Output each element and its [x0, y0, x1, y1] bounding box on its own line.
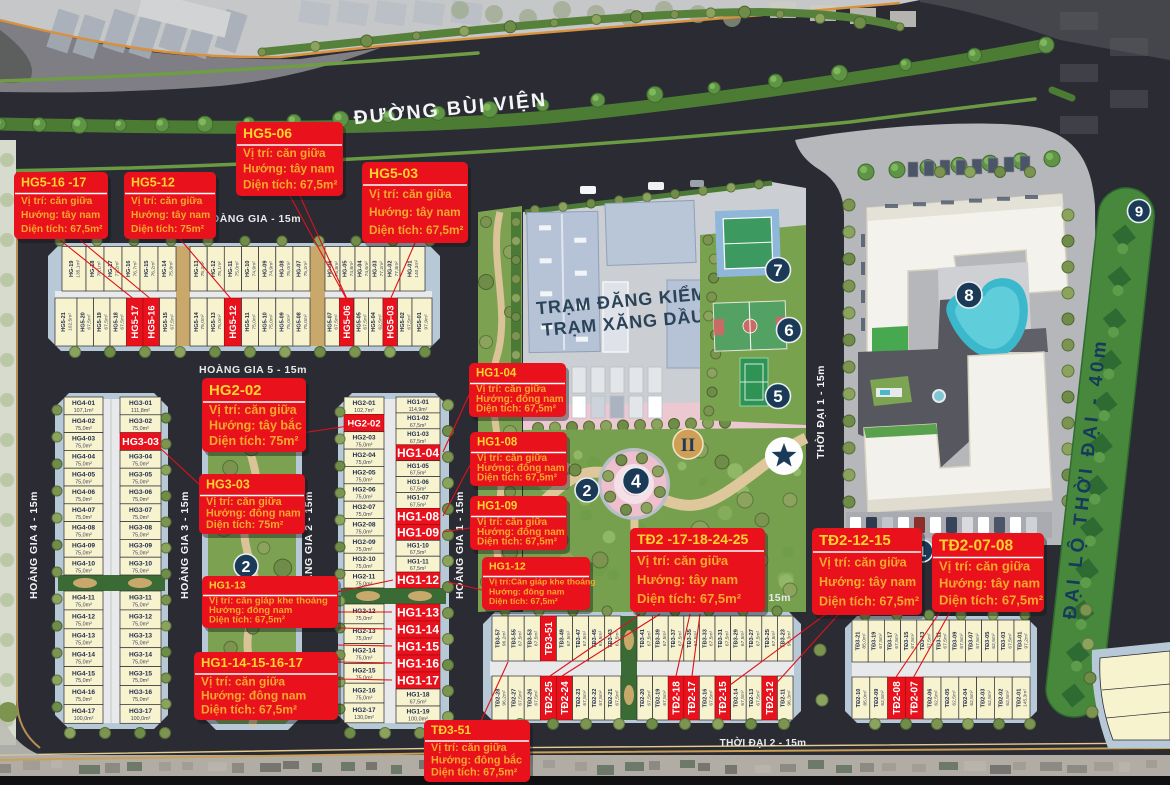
- svg-text:HG-02: HG-02: [388, 261, 394, 277]
- svg-text:TĐ3-27: TĐ3-27: [749, 629, 755, 648]
- svg-text:67,5m²: 67,5m²: [740, 690, 746, 706]
- svg-text:8: 8: [964, 286, 973, 305]
- svg-text:HOÀNG GIA 3 - 15m: HOÀNG GIA 3 - 15m: [178, 491, 191, 599]
- svg-text:HG4-08: HG4-08: [72, 525, 95, 532]
- svg-text:67,5m²: 67,5m²: [959, 633, 965, 649]
- svg-text:75,0m²: 75,0m²: [132, 568, 149, 574]
- svg-text:Diện tích: 67,5m²: Diện tích: 67,5m²: [243, 177, 337, 191]
- svg-text:67,5m²: 67,5m²: [534, 631, 540, 647]
- svg-text:67,5m²: 67,5m²: [771, 631, 777, 647]
- svg-text:67,5m²: 67,5m²: [614, 631, 620, 647]
- svg-text:67,5m²: 67,5m²: [1007, 633, 1013, 649]
- svg-text:HOÀNG GIA 5 - 15m: HOÀNG GIA 5 - 15m: [199, 363, 307, 376]
- svg-text:67,5m²: 67,5m²: [756, 631, 762, 647]
- svg-text:HOÀNG GIA 1 - 15m: HOÀNG GIA 1 - 15m: [453, 491, 466, 599]
- svg-text:HG-13: HG-13: [194, 261, 200, 277]
- svg-text:67,5m²: 67,5m²: [518, 690, 524, 706]
- svg-text:HG3-17: HG3-17: [129, 708, 152, 715]
- svg-text:TĐ3-17: TĐ3-17: [888, 632, 894, 651]
- svg-text:67,5m²: 67,5m²: [740, 631, 746, 647]
- svg-text:67,5m²: 67,5m²: [518, 631, 524, 647]
- svg-text:75,0m²: 75,0m²: [356, 460, 373, 466]
- svg-text:145,3m²: 145,3m²: [1023, 689, 1029, 707]
- svg-text:HG1-12: HG1-12: [397, 573, 439, 587]
- svg-text:TĐ2 -17-18-24-25: TĐ2 -17-18-24-25: [637, 531, 748, 547]
- svg-text:TĐ2-05: TĐ2-05: [945, 689, 951, 708]
- svg-text:77,8m²: 77,8m²: [394, 261, 400, 277]
- svg-text:HG5-06: HG5-06: [342, 305, 353, 338]
- svg-text:HG1-15: HG1-15: [397, 640, 439, 654]
- svg-text:HG5-02: HG5-02: [400, 312, 406, 332]
- svg-text:75,0m²: 75,0m²: [132, 479, 149, 485]
- svg-text:HG-10: HG-10: [245, 261, 251, 277]
- svg-text:Diện tích: 67,5m²: Diện tích: 67,5m²: [637, 591, 742, 606]
- svg-text:67,5m²: 67,5m²: [614, 690, 620, 706]
- svg-text:HG4-01: HG4-01: [72, 400, 95, 407]
- svg-text:6: 6: [784, 321, 793, 340]
- svg-text:75,0m²: 75,0m²: [356, 616, 373, 622]
- svg-text:TĐ3-25: TĐ3-25: [765, 629, 771, 648]
- svg-text:HG-19: HG-19: [69, 261, 75, 277]
- svg-text:130,0m²: 130,0m²: [354, 715, 374, 721]
- svg-text:75,0m²: 75,0m²: [132, 697, 149, 703]
- svg-text:HG3-15: HG3-15: [129, 670, 152, 677]
- svg-text:HG4-07: HG4-07: [72, 507, 95, 514]
- svg-text:67,5m²: 67,5m²: [598, 631, 604, 647]
- svg-text:TĐ2-20: TĐ2-20: [640, 689, 646, 708]
- svg-text:Hướng: tây nam: Hướng: tây nam: [939, 575, 1040, 590]
- svg-text:67,5m²: 67,5m²: [598, 690, 604, 706]
- svg-text:75,0m²: 75,0m²: [75, 497, 92, 503]
- svg-text:Diện tích: 67,5m²: Diện tích: 67,5m²: [477, 537, 558, 548]
- svg-text:TĐ2-16: TĐ2-16: [702, 689, 708, 708]
- svg-text:75,0m²: 75,0m²: [286, 261, 292, 277]
- svg-text:HG5-10: HG5-10: [262, 312, 268, 332]
- svg-text:HG5-09: HG5-09: [280, 312, 286, 332]
- svg-text:TĐ3-47: TĐ3-47: [576, 629, 582, 648]
- svg-text:HG5-18: HG5-18: [113, 312, 119, 332]
- svg-text:75,0m²: 75,0m²: [132, 533, 149, 539]
- svg-text:HG4-05: HG4-05: [72, 471, 95, 478]
- svg-text:HG4-12: HG4-12: [72, 614, 95, 621]
- svg-text:HG1-10: HG1-10: [407, 542, 429, 549]
- svg-text:HG4-10: HG4-10: [72, 560, 95, 567]
- svg-text:TĐ3-37: TĐ3-37: [671, 629, 677, 648]
- svg-text:HG1-08: HG1-08: [477, 437, 518, 449]
- svg-text:HG2-06: HG2-06: [352, 487, 375, 494]
- svg-text:75,0m²: 75,0m²: [132, 659, 149, 665]
- svg-text:HG5-05: HG5-05: [356, 312, 362, 332]
- svg-text:75,0m²: 75,0m²: [75, 479, 92, 485]
- svg-text:111,8m²: 111,8m²: [131, 408, 150, 414]
- svg-text:HG3-08: HG3-08: [129, 525, 152, 532]
- svg-text:HG1-01: HG1-01: [407, 399, 429, 406]
- svg-text:TĐ3-33: TĐ3-33: [702, 629, 708, 648]
- svg-text:HG2-02: HG2-02: [209, 382, 262, 399]
- svg-text:HG5-16 -17: HG5-16 -17: [21, 176, 86, 190]
- svg-text:75,0m²: 75,0m²: [75, 622, 92, 628]
- svg-text:HG2-03: HG2-03: [352, 435, 375, 442]
- svg-text:HG1-13: HG1-13: [397, 606, 439, 620]
- svg-text:75,2m²: 75,2m²: [303, 261, 309, 277]
- svg-text:102,7m²: 102,7m²: [354, 408, 374, 414]
- svg-text:HG4-03: HG4-03: [72, 436, 95, 443]
- svg-text:HG-05: HG-05: [343, 261, 349, 277]
- svg-text:THỜI ĐẠI 1 - 15m: THỜI ĐẠI 1 - 15m: [814, 365, 827, 459]
- svg-text:TĐ3-31: TĐ3-31: [718, 629, 724, 648]
- svg-text:HG2-07: HG2-07: [352, 504, 375, 511]
- svg-text:67,5m²: 67,5m²: [943, 633, 949, 649]
- svg-text:100,0m²: 100,0m²: [74, 716, 94, 722]
- svg-text:TĐ2-09: TĐ2-09: [874, 689, 880, 708]
- svg-text:67,5m²: 67,5m²: [410, 550, 426, 556]
- svg-text:HG4-06: HG4-06: [72, 489, 95, 496]
- svg-text:HG4-02: HG4-02: [72, 418, 95, 425]
- svg-text:HG5-11: HG5-11: [245, 312, 251, 331]
- svg-text:107,1m²: 107,1m²: [74, 408, 94, 414]
- svg-text:97,2m²: 97,2m²: [1024, 633, 1030, 649]
- svg-text:75,0m²: 75,0m²: [356, 529, 373, 535]
- svg-text:74,9m²: 74,9m²: [269, 261, 275, 277]
- svg-text:85,0m²: 85,0m²: [862, 690, 868, 706]
- svg-text:TĐ2-08: TĐ2-08: [892, 681, 903, 715]
- svg-text:TĐ3-41: TĐ3-41: [640, 629, 646, 648]
- svg-text:75,0m²: 75,0m²: [132, 497, 149, 503]
- svg-text:Hướng: đông nam: Hướng: đông nam: [206, 508, 301, 520]
- svg-text:TĐ2-27: TĐ2-27: [511, 689, 517, 708]
- svg-text:67,5m²: 67,5m²: [582, 690, 588, 706]
- svg-text:TĐ2-28: TĐ2-28: [495, 689, 501, 708]
- svg-text:HG1-16: HG1-16: [397, 657, 439, 671]
- svg-text:75,0m²: 75,0m²: [356, 512, 373, 518]
- svg-text:Hướng: tây nam: Hướng: tây nam: [21, 210, 100, 221]
- svg-text:85,0m²: 85,0m²: [862, 633, 868, 649]
- svg-text:75,0m²: 75,0m²: [132, 515, 149, 521]
- svg-text:TĐ2-13: TĐ2-13: [749, 689, 755, 708]
- svg-text:HG-16: HG-16: [126, 261, 132, 277]
- svg-text:75,0m²: 75,0m²: [75, 659, 92, 665]
- svg-text:78,1m²: 78,1m²: [97, 261, 103, 277]
- svg-text:74,8m²: 74,8m²: [349, 261, 355, 277]
- svg-text:THỜI ĐẠI 2 - 15m: THỜI ĐẠI 2 - 15m: [720, 736, 807, 749]
- svg-text:TĐ2-22: TĐ2-22: [592, 689, 598, 708]
- svg-text:67,5m²: 67,5m²: [582, 631, 588, 647]
- svg-text:TĐ2-15: TĐ2-15: [718, 681, 729, 715]
- svg-text:HG1-09: HG1-09: [477, 501, 517, 513]
- svg-text:HG5-08: HG5-08: [297, 312, 303, 332]
- svg-text:77,2m²: 77,2m²: [379, 261, 385, 277]
- svg-text:62,5m²: 62,5m²: [969, 690, 975, 706]
- svg-text:HG-04: HG-04: [358, 260, 364, 277]
- svg-text:TĐ2-03: TĐ2-03: [981, 689, 987, 708]
- svg-text:HG5-12: HG5-12: [228, 305, 239, 338]
- svg-text:75,0m²: 75,0m²: [356, 695, 373, 701]
- svg-text:HG-08: HG-08: [280, 261, 286, 277]
- svg-text:75,0m²: 75,0m²: [234, 261, 240, 277]
- svg-text:75,0m²: 75,0m²: [132, 622, 149, 628]
- svg-text:75,0m²: 75,0m²: [356, 477, 373, 483]
- svg-text:HG5-20: HG5-20: [80, 312, 86, 332]
- svg-text:96,3m²: 96,3m²: [787, 631, 793, 647]
- svg-text:75,0m²: 75,0m²: [75, 697, 92, 703]
- svg-text:62,5m²: 62,5m²: [951, 690, 957, 706]
- svg-text:Diện tích: 67,5m²: Diện tích: 67,5m²: [477, 473, 558, 484]
- svg-text:HG2-17: HG2-17: [352, 707, 375, 714]
- svg-text:67,5m²: 67,5m²: [678, 631, 684, 647]
- svg-text:TĐ3-01: TĐ3-01: [1017, 632, 1023, 651]
- svg-text:HG3-13: HG3-13: [129, 633, 152, 640]
- svg-text:HG1-06: HG1-06: [407, 479, 429, 486]
- svg-text:HG2-10: HG2-10: [352, 556, 375, 563]
- svg-text:67,5m²: 67,5m²: [975, 633, 981, 649]
- svg-text:HG5-04: HG5-04: [371, 311, 377, 331]
- svg-text:67,5m²: 67,5m²: [410, 471, 426, 477]
- svg-text:77,2m²: 77,2m²: [115, 261, 121, 277]
- svg-text:75,0m²: 75,0m²: [356, 636, 373, 642]
- svg-text:HG1-02: HG1-02: [407, 415, 429, 422]
- svg-text:HG4-15: HG4-15: [72, 670, 95, 677]
- svg-text:TĐ2-21: TĐ2-21: [608, 689, 614, 708]
- svg-text:67,5m²: 67,5m²: [410, 503, 426, 509]
- svg-text:67,5m²: 67,5m²: [410, 700, 427, 706]
- svg-text:HG2-01: HG2-01: [352, 400, 375, 407]
- svg-text:75,0m²: 75,0m²: [75, 462, 92, 468]
- svg-text:HG5-03: HG5-03: [369, 165, 418, 181]
- svg-text:HG-11: HG-11: [228, 261, 234, 277]
- svg-text:HG3-02: HG3-02: [129, 418, 152, 425]
- svg-text:HG-03: HG-03: [373, 261, 379, 277]
- svg-text:TĐ3-21: TĐ3-21: [855, 632, 861, 651]
- svg-text:HG1-05: HG1-05: [407, 463, 429, 470]
- svg-text:75,1m²: 75,1m²: [217, 261, 223, 277]
- svg-text:HOÀNG GIA 4 - 15m: HOÀNG GIA 4 - 15m: [27, 491, 40, 599]
- svg-text:TĐ3-07: TĐ3-07: [969, 632, 975, 651]
- svg-text:75,0m²: 75,0m²: [252, 314, 258, 330]
- svg-text:76,7m²: 76,7m²: [133, 261, 139, 277]
- svg-text:75,0m²: 75,0m²: [356, 564, 373, 570]
- svg-text:TĐ3-55: TĐ3-55: [511, 629, 517, 648]
- svg-text:HG5-16: HG5-16: [146, 305, 157, 338]
- svg-text:Hướng: đông bắc: Hướng: đông bắc: [431, 753, 522, 766]
- svg-text:Diện tích: 75m²: Diện tích: 75m²: [209, 434, 299, 448]
- svg-text:TĐ2-12-15: TĐ2-12-15: [819, 532, 891, 549]
- svg-text:75,0m²: 75,0m²: [132, 551, 149, 557]
- svg-text:HG3-03: HG3-03: [206, 478, 250, 492]
- svg-text:HG5-15: HG5-15: [163, 312, 169, 332]
- svg-text:Vị trí: căn giữa: Vị trí: căn giữa: [819, 555, 908, 569]
- svg-text:75,0m²: 75,0m²: [75, 444, 92, 450]
- svg-text:75,0m²: 75,0m²: [132, 462, 149, 468]
- svg-text:Diện tích: 67,5m²: Diện tích: 67,5m²: [476, 404, 557, 415]
- svg-text:75,0m²: 75,0m²: [75, 515, 92, 521]
- svg-text:67,5m²: 67,5m²: [410, 423, 426, 429]
- svg-text:62,5m²: 62,5m²: [991, 633, 997, 649]
- svg-text:TĐ3-49: TĐ3-49: [560, 629, 566, 648]
- svg-text:75,8m²: 75,8m²: [334, 261, 340, 277]
- svg-text:Vị trí:Căn giáp khe thoáng: Vị trí:Căn giáp khe thoáng: [489, 577, 595, 587]
- svg-text:Diện tích: 75m²: Diện tích: 75m²: [206, 519, 284, 531]
- svg-text:Vị trí: căn giữa: Vị trí: căn giữa: [637, 553, 729, 568]
- svg-text:67,5m²: 67,5m²: [878, 633, 884, 649]
- svg-text:Diện tích: 67,5m²: Diện tích: 67,5m²: [489, 596, 558, 606]
- svg-text:75,0m²: 75,0m²: [200, 314, 206, 330]
- svg-text:135,1m²: 135,1m²: [76, 259, 82, 277]
- svg-text:75,0m²: 75,0m²: [75, 568, 92, 574]
- svg-text:Diện tích: 67,5m²: Diện tích: 67,5m²: [819, 595, 919, 609]
- svg-text:HG3-09: HG3-09: [129, 543, 152, 550]
- svg-text:67,5m²: 67,5m²: [756, 690, 762, 706]
- svg-text:100,0m²: 100,0m²: [408, 717, 428, 723]
- svg-text:HG4-16: HG4-16: [72, 689, 95, 696]
- svg-text:Hướng: tây bắc: Hướng: tây bắc: [209, 418, 302, 433]
- svg-text:Diện tích: 67,5m²: Diện tích: 67,5m²: [431, 767, 518, 779]
- svg-text:67,5m²: 67,5m²: [169, 314, 175, 330]
- svg-text:HG3-14: HG3-14: [129, 651, 152, 658]
- svg-text:67,5m²: 67,5m²: [894, 633, 900, 649]
- svg-text:96,2m²: 96,2m²: [502, 631, 508, 647]
- svg-text:140,3m²: 140,3m²: [414, 259, 420, 277]
- svg-text:HG5-06: HG5-06: [243, 125, 292, 141]
- svg-text:HG5-07: HG5-07: [327, 312, 333, 332]
- svg-text:TĐ2-11: TĐ2-11: [780, 689, 786, 707]
- svg-text:Diện tích: 67,5m²: Diện tích: 67,5m²: [369, 223, 463, 237]
- svg-text:HG5-19: HG5-19: [97, 312, 103, 332]
- svg-text:TĐ3-39: TĐ3-39: [656, 629, 662, 648]
- svg-text:2: 2: [242, 559, 251, 576]
- svg-text:HG2-11: HG2-11: [353, 574, 376, 581]
- svg-text:Hướng: tây nam: Hướng: tây nam: [637, 572, 738, 587]
- svg-text:HG3-04: HG3-04: [129, 454, 152, 461]
- svg-text:TĐ3-03: TĐ3-03: [1001, 632, 1007, 651]
- svg-text:75,0m²: 75,0m²: [75, 551, 92, 557]
- svg-text:TĐ2-01: TĐ2-01: [1016, 689, 1022, 708]
- svg-text:67,5m²: 67,5m²: [406, 314, 412, 330]
- svg-text:75,0m²: 75,0m²: [132, 603, 149, 609]
- svg-text:HG4-17: HG4-17: [72, 708, 95, 715]
- svg-text:75,0m²: 75,0m²: [132, 678, 149, 684]
- svg-text:TĐ2-07: TĐ2-07: [910, 681, 921, 715]
- svg-text:HG-14: HG-14: [162, 260, 168, 277]
- svg-text:II: II: [681, 435, 696, 456]
- svg-text:HG1-14-15-16-17: HG1-14-15-16-17: [201, 655, 303, 670]
- svg-text:75,0m²: 75,0m²: [303, 314, 309, 330]
- svg-text:HG2-04: HG2-04: [352, 452, 375, 459]
- svg-text:67,5m²: 67,5m²: [87, 314, 93, 330]
- svg-text:TĐ2-18: TĐ2-18: [671, 681, 682, 715]
- svg-text:75,0m²: 75,0m²: [75, 603, 92, 609]
- svg-text:HG1-09: HG1-09: [397, 525, 439, 539]
- svg-text:67,5m²: 67,5m²: [926, 633, 932, 649]
- svg-text:Diện tích: 67,5m²: Diện tích: 67,5m²: [21, 224, 103, 235]
- svg-text:67,5m²: 67,5m²: [410, 439, 426, 445]
- svg-text:75,0m²: 75,0m²: [286, 314, 292, 330]
- svg-text:HG3-06: HG3-06: [129, 489, 152, 496]
- svg-text:TĐ3-35: TĐ3-35: [687, 629, 693, 648]
- svg-text:HG1-19: HG1-19: [406, 709, 429, 716]
- svg-text:Hướng: tây nam: Hướng: tây nam: [243, 162, 335, 176]
- svg-text:67,5m²: 67,5m²: [646, 690, 652, 706]
- svg-text:HG3-16: HG3-16: [129, 689, 152, 696]
- svg-text:Vị trí: căn giữa: Vị trí: căn giữa: [201, 674, 285, 688]
- svg-text:HG4-11: HG4-11: [72, 595, 95, 602]
- svg-text:67,5m²: 67,5m²: [662, 631, 668, 647]
- svg-text:67,5m²: 67,5m²: [566, 631, 572, 647]
- svg-text:75,0m²: 75,0m²: [269, 314, 275, 330]
- svg-text:Vị trí: căn giữa: Vị trí: căn giữa: [939, 559, 1031, 574]
- svg-text:HG1-04: HG1-04: [397, 446, 439, 460]
- svg-text:HG5-14: HG5-14: [194, 311, 200, 331]
- svg-text:TĐ2-10: TĐ2-10: [856, 689, 862, 708]
- svg-text:75,8m²: 75,8m²: [169, 261, 175, 277]
- svg-text:74,9m²: 74,9m²: [252, 261, 258, 277]
- svg-text:HG-07: HG-07: [297, 261, 303, 277]
- svg-text:2: 2: [583, 483, 592, 500]
- svg-text:Vị trí: căn giữa: Vị trí: căn giữa: [206, 496, 283, 508]
- svg-text:67,5m²: 67,5m²: [709, 631, 715, 647]
- svg-text:HG2-08: HG2-08: [352, 521, 375, 528]
- svg-text:HG3-05: HG3-05: [129, 471, 152, 478]
- svg-text:Vị trí: căn giữa: Vị trí: căn giữa: [243, 146, 326, 160]
- svg-text:9: 9: [1135, 203, 1143, 220]
- svg-text:67,5m²: 67,5m²: [662, 690, 668, 706]
- svg-text:HG3-07: HG3-07: [129, 507, 152, 514]
- svg-text:67,5m²: 67,5m²: [120, 314, 126, 330]
- svg-text:100,0m²: 100,0m²: [131, 716, 151, 722]
- svg-text:HG5-12: HG5-12: [131, 176, 175, 190]
- svg-text:HG2-16: HG2-16: [352, 687, 375, 694]
- svg-text:TĐ3-09: TĐ3-09: [953, 632, 959, 651]
- svg-text:67,5m²: 67,5m²: [410, 487, 426, 493]
- svg-text:Diện tích: 67,5m²: Diện tích: 67,5m²: [209, 615, 285, 626]
- svg-text:Hướng: tây nam: Hướng: tây nam: [369, 205, 461, 219]
- svg-text:HG1-18: HG1-18: [406, 692, 429, 699]
- svg-text:HG2-15: HG2-15: [352, 668, 375, 675]
- svg-text:Hướng: đông nam: Hướng: đông nam: [489, 586, 565, 596]
- svg-text:Vị trí: căn giữa: Vị trí: căn giữa: [21, 196, 93, 207]
- svg-text:TĐ2-04: TĐ2-04: [963, 688, 969, 708]
- svg-text:75,0m²: 75,0m²: [75, 640, 92, 646]
- svg-text:67,5m²: 67,5m²: [410, 566, 426, 572]
- svg-text:75,0m²: 75,0m²: [132, 640, 149, 646]
- svg-text:HG3-01: HG3-01: [129, 400, 152, 407]
- svg-text:TĐ3-29: TĐ3-29: [734, 629, 740, 648]
- svg-text:HG1-12: HG1-12: [489, 561, 526, 573]
- svg-text:HG1-11: HG1-11: [407, 558, 429, 565]
- svg-text:Hướng: tây nam: Hướng: tây nam: [131, 210, 210, 221]
- svg-text:Diện tích: 67,5m²: Diện tích: 67,5m²: [201, 702, 297, 716]
- svg-text:TĐ3-19: TĐ3-19: [872, 632, 878, 651]
- svg-text:TĐ2-02: TĐ2-02: [999, 689, 1005, 708]
- svg-text:Hướng: đông nam: Hướng: đông nam: [201, 688, 306, 702]
- svg-text:75,0m²: 75,0m²: [75, 426, 92, 432]
- svg-text:HG-01: HG-01: [408, 261, 414, 277]
- svg-text:75,0m²: 75,0m²: [132, 426, 149, 432]
- svg-text:75,0m²: 75,0m²: [75, 678, 92, 684]
- svg-text:HG5-17: HG5-17: [130, 305, 141, 338]
- svg-text:HG4-13: HG4-13: [72, 633, 95, 640]
- svg-text:Diện tích: 75m²: Diện tích: 75m²: [131, 224, 205, 235]
- svg-text:HG-09: HG-09: [262, 261, 268, 277]
- svg-text:67,5m²: 67,5m²: [910, 633, 916, 649]
- svg-text:HG4-14: HG4-14: [72, 651, 95, 658]
- svg-text:75,0m²: 75,0m²: [356, 676, 373, 682]
- svg-text:HG5-21: HG5-21: [61, 312, 67, 332]
- svg-text:67,5m²: 67,5m²: [334, 314, 340, 330]
- svg-text:67,5m²: 67,5m²: [363, 314, 369, 330]
- svg-text:97,9m²: 97,9m²: [424, 314, 430, 330]
- svg-text:TĐ3-53: TĐ3-53: [527, 629, 533, 648]
- svg-text:75,0m²: 75,0m²: [75, 533, 92, 539]
